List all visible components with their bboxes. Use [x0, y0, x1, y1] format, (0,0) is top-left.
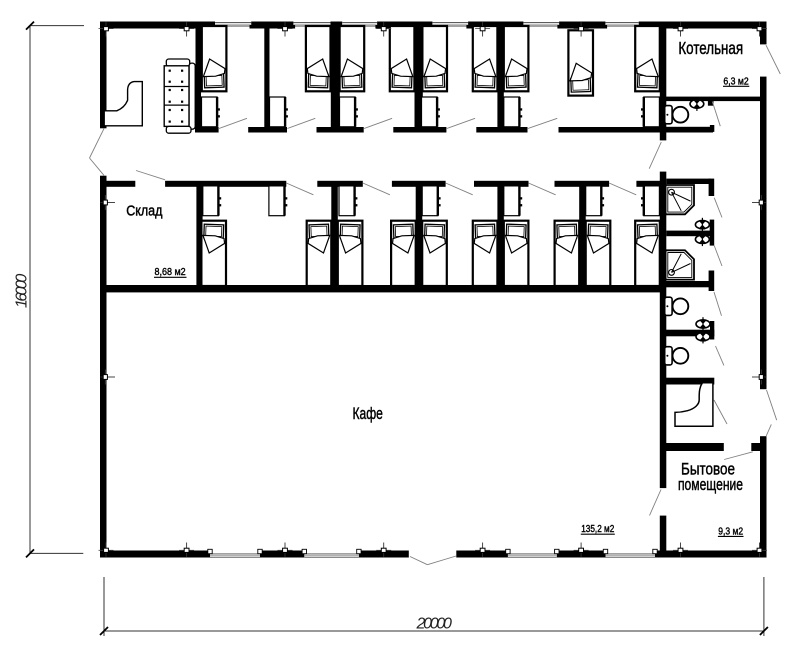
svg-text:помещение: помещение — [678, 476, 743, 494]
svg-text:Кафе: Кафе — [353, 404, 383, 423]
svg-text:Склад: Склад — [126, 204, 163, 220]
svg-text:135,2 м2: 135,2 м2 — [581, 524, 614, 535]
svg-text:16000: 16000 — [14, 274, 31, 308]
svg-text:Котельная: Котельная — [678, 38, 743, 58]
svg-text:20000: 20000 — [416, 616, 452, 633]
svg-text:9,3 м2: 9,3 м2 — [718, 526, 743, 537]
svg-text:8,68 м2: 8,68 м2 — [155, 267, 186, 278]
